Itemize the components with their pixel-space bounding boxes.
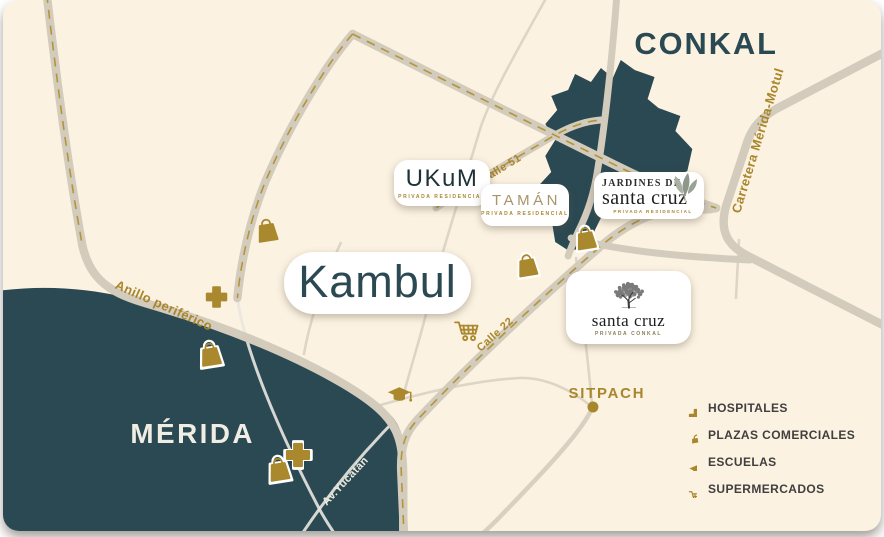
jardines-tagline: PRIVADA RESIDENCIAL <box>613 209 692 214</box>
shopping-cart-icon <box>455 322 477 340</box>
santa-cruz-tagline: PRIVADA CONKAL <box>595 331 662 337</box>
legend-label: HOSPITALES <box>708 401 788 415</box>
shopping-bag-icon <box>678 425 699 446</box>
calle-22-road-label: Calle 22 <box>475 315 516 354</box>
conkal-label: CONKAL <box>634 26 778 61</box>
shopping-cart-icon <box>679 480 697 498</box>
legend-item-hospitales: HOSPITALES <box>679 399 855 417</box>
shopping-bag-icon <box>515 251 540 279</box>
legend-item-escuelas: ESCUELAS <box>679 453 855 471</box>
map-canvas: CONKAL MÉRIDA SITPACH Anillo periférico … <box>3 0 881 531</box>
map-legend: HOSPITALES PLAZAS COMERCIALES ESCUELAS S… <box>679 399 855 498</box>
taman-name: TAMÁN <box>492 193 561 208</box>
taman-development-badge: TAMÁN PRIVADA RESIDENCIAL <box>481 184 569 226</box>
santa-cruz-name: santa cruz <box>592 312 665 329</box>
jardines-santa-cruz-development-badge: JARDINES DE santa cruz PRIVADA RESIDENCI… <box>594 172 704 219</box>
legend-item-plazas-comerciales: PLAZAS COMERCIALES <box>679 426 855 444</box>
legend-label: SUPERMERCADOS <box>708 482 825 496</box>
shopping-bag-icon <box>257 218 278 241</box>
taman-tagline: PRIVADA RESIDENCIAL <box>481 211 569 217</box>
page: CONKAL MÉRIDA SITPACH Anillo periférico … <box>0 0 884 537</box>
graduation-cap-icon <box>679 453 697 471</box>
kambul-development-badge: Kambul <box>284 252 471 314</box>
ukum-name: UKuM <box>406 167 479 191</box>
legend-item-supermercados: SUPERMERCADOS <box>679 480 855 498</box>
hospital-cross-icon <box>679 399 697 417</box>
ukum-development-badge: UKuM PRIVADA RESIDENCIAL <box>394 160 490 206</box>
legend-label: ESCUELAS <box>708 455 777 469</box>
merida-label: MÉRIDA <box>130 418 255 449</box>
hospital-cross-icon <box>207 287 226 306</box>
leaf-ornament-icon <box>672 170 702 202</box>
kambul-name: Kambul <box>298 259 457 304</box>
santa-cruz-development-badge: santa cruz PRIVADA CONKAL <box>566 271 691 344</box>
tree-icon <box>597 273 661 315</box>
ukum-tagline: PRIVADA RESIDENCIAL <box>398 194 486 200</box>
legend-label: PLAZAS COMERCIALES <box>708 428 855 442</box>
sitpach-label: SITPACH <box>568 385 645 402</box>
sitpach-junction-dot <box>588 402 599 413</box>
carretera-merida-motul-road-label: Carretera Mérida-Motul <box>729 66 787 215</box>
graduation-cap-icon <box>388 387 412 401</box>
